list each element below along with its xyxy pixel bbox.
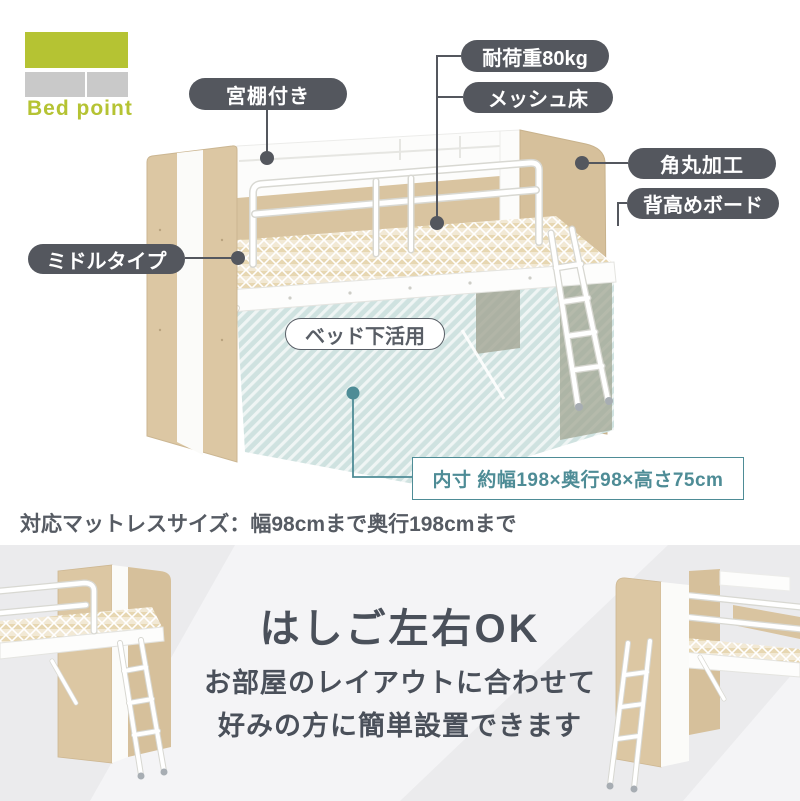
callout-load-capacity: 耐荷重80kg <box>461 40 609 72</box>
logo-gray-block-right <box>87 72 128 97</box>
dot-mesh-floor <box>430 216 444 230</box>
dot-inner-size <box>347 387 360 400</box>
callout-shelf: 宮棚付き <box>189 78 347 110</box>
dot-rounded-corner <box>575 156 589 170</box>
dot-shelf <box>260 151 274 165</box>
bed-left-panel <box>147 146 237 462</box>
logo-green-block <box>25 32 128 68</box>
bottom-description-line1: お部屋のレイアウトに合わせて <box>0 661 800 700</box>
mattress-size-note: 対応マットレスサイズ：幅98cmまで奥行198cmまで <box>20 508 540 536</box>
callout-mesh-floor: メッシュ床 <box>463 82 613 113</box>
callout-middle-type: ミドルタイプ <box>28 244 185 274</box>
dot-middle-type <box>231 251 245 265</box>
inner-size-box: 内寸 約幅198×奥行98×高さ75cm <box>412 457 744 500</box>
callout-under-bed: ベッド下活用 <box>285 318 445 350</box>
callout-rounded-corner: 角丸加工 <box>628 148 776 179</box>
bottom-heading: はしご左右OK <box>0 596 800 654</box>
callout-tall-board: 背高めボード <box>627 188 779 219</box>
product-feature-image: Bed point 宮棚付き 耐荷重80kg メッシュ床 角丸加工 背高めボード… <box>0 0 800 801</box>
logo-gray-block-left <box>25 72 85 97</box>
logo-label: Bed point <box>27 97 147 123</box>
bottom-description-line2: 好みの方に簡単設置できます <box>0 704 800 743</box>
